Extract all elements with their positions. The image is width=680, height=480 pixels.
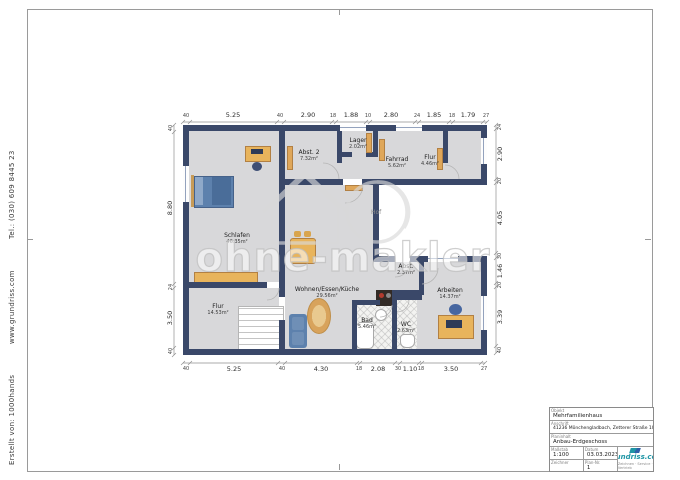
window [481,138,487,164]
bed-pillows [195,177,203,205]
objekt-value: Mehrfamilienhaus [553,413,602,419]
dim-label: 2.90 [301,111,315,119]
wall [279,320,285,349]
wall [362,179,487,185]
room-label-bad: Bad5.46m² [358,318,376,331]
room-label-flur: Flur14.53m² [207,304,228,317]
logo-cell: grundriss.com Zeichnen · Service · Vertr… [618,447,653,471]
outdoor-label-hof: Hof [371,209,381,216]
wall [189,282,267,288]
dim-label: 24 [497,124,503,130]
window [396,125,422,131]
room-label-flur-top: Flur4.46m² [421,155,439,168]
zeichner-label: Zeichner [551,460,569,465]
room-label-lager: Lager2.02m² [349,138,367,151]
room-label-wc: WC2.63m² [397,322,415,335]
room-label-fahrrad: Fahrrad5.62m² [386,157,409,170]
dim-label: 18 [330,113,336,119]
dim-label: 40 [168,348,174,354]
wall [279,131,285,297]
dim-label: 27 [483,113,489,119]
dim-label: 2.08 [371,365,385,373]
dim-label: 27 [481,366,487,372]
stairs [238,306,284,351]
plannr-value: 1 [587,465,591,471]
credit-author: Erstellt von: 1000hands [8,375,16,465]
window [481,296,487,330]
wall [337,131,342,163]
dim-label: 18 [418,366,424,372]
titleblock-row-anschrift: Anschrift 41236 Mönchengladbach, Zettere… [550,421,653,434]
monitor-arbeiten [446,320,462,328]
dim-label: 3.39 [496,310,504,324]
titleblock-row-objekt: Objekt Mehrfamilienhaus [550,408,653,421]
wall [342,152,352,157]
door-panel [345,185,363,191]
dim-label: 5.25 [226,111,240,119]
dim-label: 2.80 [384,111,398,119]
wall [443,131,448,163]
dim-label: 24 [168,284,174,290]
dim-label: 18 [356,366,362,372]
kitchen-table [290,238,316,264]
window [340,125,366,131]
dim-label: 30 [497,253,503,259]
monitor-schlafen [251,149,263,154]
dim-label: 40 [168,125,174,131]
wall [285,179,343,185]
wall [352,300,357,349]
door-panel [379,139,385,161]
dim-label: 40 [279,366,285,372]
door-panel [287,146,293,170]
dim-label: 1.88 [344,111,358,119]
dim-label: 3.50 [444,365,458,373]
dim-label: 4.05 [496,211,504,225]
credit-website: www.grundriss.com [8,270,16,344]
grundriss-logo-text: grundriss.com [618,454,653,461]
dim-label: 40 [183,366,189,372]
wall [397,295,422,300]
wall [373,185,379,262]
kitchen-chair [294,231,301,237]
dim-label: 8.80 [166,201,174,215]
window [428,256,458,262]
toilet [400,334,415,348]
stove-burner [379,293,384,298]
planinhalt-value: Anbau-Erdgeschoss [553,439,607,445]
dim-label: 20 [497,282,503,288]
dim-label: 1.46 [496,264,504,278]
dim-label: 1.85 [427,111,441,119]
dim-label: 20 [497,178,503,184]
dim-label: 10 [365,113,371,119]
window [183,166,189,202]
dim-label: 18 [449,113,455,119]
dim-label: 24 [414,113,420,119]
wall [373,131,378,157]
room-label-abst2: Abst. 27.32m² [298,150,319,163]
credit-phone: Tel.: (030) 609 8445 23 [8,150,16,239]
wall [183,349,487,355]
dining-table-oval [307,298,331,334]
dim-label: 40 [497,347,503,353]
dim-label: 1.79 [461,111,475,119]
wall [183,125,487,131]
room-label-schlafen: Schlafen46.35m² [224,233,250,246]
dim-label: 40 [277,113,283,119]
wall [419,262,424,295]
titleblock-row-meta: Maßstab 1:100 Datum 03.03.2023 Zeichner … [550,447,653,471]
fold-mark-top [339,9,340,15]
sofa-cushion [292,332,304,345]
dim-label: 4.30 [314,365,328,373]
anschrift-value: 41236 Mönchengladbach, Zetterer Straße 1… [553,426,653,431]
grundriss-logo-tagline: Zeichnen · Service · Vertrieb [618,462,653,470]
massstab-value: 1:100 [553,452,569,458]
wall [352,300,380,305]
dim-label: 40 [183,113,189,119]
sofa-cushion [292,317,304,330]
room-label-wohnen: Wohnen/Essen/Küche29.56m² [295,287,359,300]
dim-label: 1.10 [403,365,417,373]
wall [183,131,189,355]
bed-blanket [212,177,231,205]
kitchen-chair [304,231,311,237]
chair-schlafen [252,162,262,171]
fold-mark-right [645,239,651,240]
room-label-abst: Abst.2.37m² [397,264,415,277]
wall [373,256,395,262]
title-block: Objekt Mehrfamilienhaus Anschrift 41236 … [549,407,654,472]
drawing-sheet: Erstellt von: 1000hands www.grundriss.co… [0,0,680,480]
sink-bad [375,309,387,321]
dim-label: 30 [395,366,401,372]
room-label-arbeiten: Arbeiten14.37m² [437,288,463,301]
dim-label: 5.25 [227,365,241,373]
datum-value: 03.03.2023 [587,452,617,458]
stove-burner [386,293,391,298]
fold-mark-bottom [339,464,340,470]
dim-label: 3.50 [166,311,174,325]
titleblock-row-planinhalt: Planinhalt Anbau-Erdgeschoss [550,434,653,447]
fold-mark-left [27,239,33,240]
chair-arbeiten [449,304,462,315]
dim-label: 2.90 [496,147,504,161]
left-margin-credit: Erstellt von: 1000hands www.grundriss.co… [6,150,18,465]
